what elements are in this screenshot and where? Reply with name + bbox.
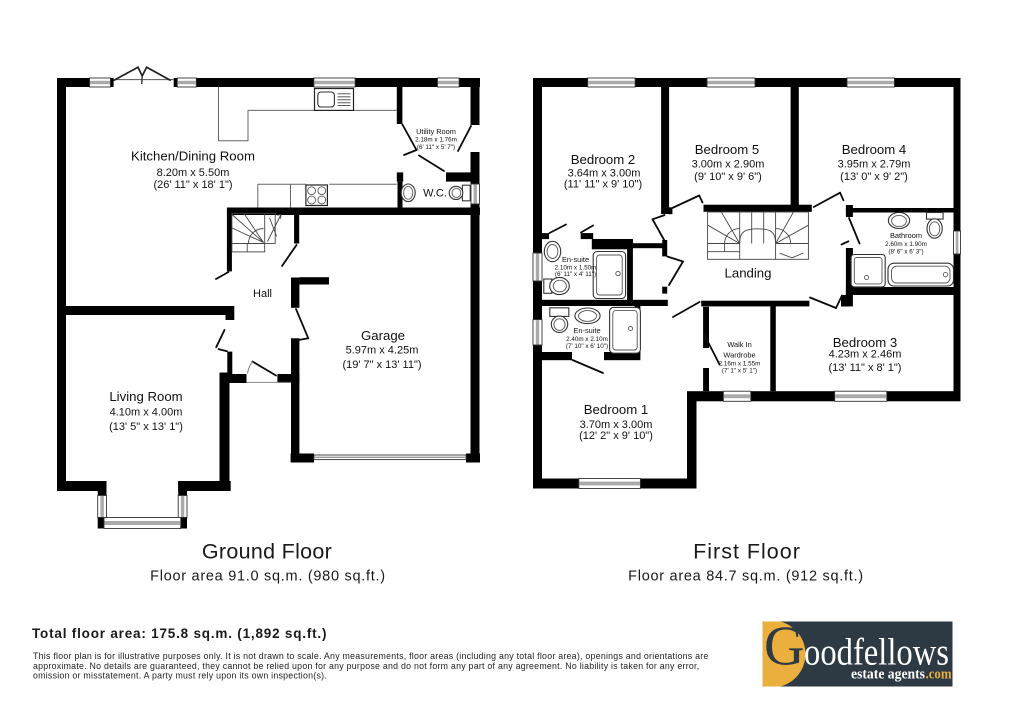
svg-text:(13' 0" x 9' 2"): (13' 0" x 9' 2") [840, 171, 908, 183]
svg-text:First Floor: First Floor [693, 540, 801, 564]
svg-text:(6' 11" x 5' 7"): (6' 11" x 5' 7") [417, 144, 455, 151]
svg-text:3.00m x 2.90m: 3.00m x 2.90m [692, 159, 765, 171]
svg-text:Landing: Landing [725, 266, 772, 281]
svg-text:(13' 5" x 13' 1"): (13' 5" x 13' 1") [109, 421, 183, 433]
svg-text:.com: .com [926, 667, 952, 683]
svg-text:Ground Floor: Ground Floor [202, 540, 332, 564]
svg-text:Garage: Garage [361, 328, 405, 343]
svg-text:Wardrobe: Wardrobe [723, 351, 755, 360]
svg-text:approximate. No details are gu: approximate. No details are guaranteed, … [33, 661, 699, 671]
svg-text:(7' 10" x 6' 10"): (7' 10" x 6' 10") [566, 343, 608, 350]
svg-text:Bathroom: Bathroom [890, 231, 922, 240]
svg-text:Hall: Hall [253, 288, 272, 300]
svg-text:Utility Room: Utility Room [416, 127, 456, 136]
svg-text:(19' 7" x 13' 11"): (19' 7" x 13' 11") [342, 359, 421, 371]
svg-text:4.10m x 4.00m: 4.10m x 4.00m [110, 407, 183, 419]
svg-text:Total floor area: 175.8 sq.m.: Total floor area: 175.8 sq.m. (1,892 sq.… [32, 626, 327, 641]
svg-text:estate agents: estate agents [851, 667, 925, 683]
svg-text:(13' 11" x 8' 1"): (13' 11" x 8' 1") [829, 362, 902, 374]
svg-text:Bedroom 5: Bedroom 5 [695, 142, 760, 157]
svg-text:Bedroom 2: Bedroom 2 [571, 152, 636, 167]
svg-text:2.16m x 1.55m: 2.16m x 1.55m [719, 361, 761, 368]
svg-text:Bedroom 1: Bedroom 1 [584, 402, 649, 417]
svg-text:This floor plan is for illustr: This floor plan is for illustrative purp… [33, 651, 709, 661]
svg-text:2.18m x 1.76m: 2.18m x 1.76m [415, 137, 457, 144]
svg-text:5.97m x 4.25m: 5.97m x 4.25m [346, 345, 419, 357]
svg-text:(26' 11" x 18' 1"): (26' 11" x 18' 1") [153, 179, 232, 191]
svg-text:En-suite: En-suite [562, 255, 589, 264]
svg-text:En-suite: En-suite [573, 326, 600, 335]
svg-text:8.20m x 5.50m: 8.20m x 5.50m [157, 167, 230, 179]
svg-text:(8' 6" x 6' 3"): (8' 6" x 6' 3") [888, 249, 923, 256]
svg-text:Living Room: Living Room [109, 389, 182, 404]
svg-text:Floor area 91.0 sq.m. (980 sq.: Floor area 91.0 sq.m. (980 sq.ft.) [150, 569, 386, 585]
svg-text:(11' 11" x 9' 10"): (11' 11" x 9' 10") [564, 179, 642, 191]
svg-text:2.40m x 2.10m: 2.40m x 2.10m [566, 336, 608, 343]
svg-text:Floor area 84.7 sq.m. (912 sq.: Floor area 84.7 sq.m. (912 sq.ft.) [628, 569, 864, 585]
svg-text:4.23m x 2.46m: 4.23m x 2.46m [829, 349, 902, 361]
svg-text:2.60m x 1.90m: 2.60m x 1.90m [885, 241, 927, 248]
svg-text:(6' 11" x 4' 11"): (6' 11" x 4' 11") [555, 271, 596, 278]
svg-text:(7' 1" x 5' 1"): (7' 1" x 5' 1") [722, 368, 757, 375]
svg-text:Kitchen/Dining Room: Kitchen/Dining Room [131, 149, 255, 164]
svg-text:Walk In: Walk In [727, 340, 751, 349]
svg-text:3.95m x 2.79m: 3.95m x 2.79m [838, 159, 911, 171]
svg-text:(9' 10" x 9' 6"): (9' 10" x 9' 6") [694, 171, 762, 183]
svg-text:(12' 2" x 9' 10"): (12' 2" x 9' 10") [579, 430, 653, 442]
svg-text:omission or misstatement. A pa: omission or misstatement. A party must r… [33, 671, 327, 681]
svg-text:W.C.: W.C. [423, 188, 447, 200]
svg-text:G: G [764, 616, 804, 678]
svg-text:Bedroom 4: Bedroom 4 [842, 142, 907, 157]
